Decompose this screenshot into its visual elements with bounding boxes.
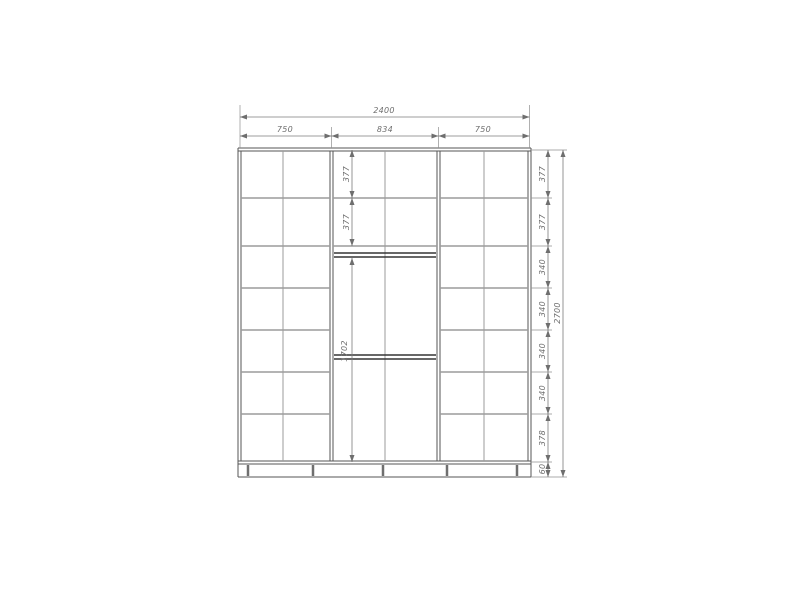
dim-section-width-right: 750 (475, 125, 491, 134)
dim-right-row-6: 340 (538, 385, 547, 401)
dim-middle-row-2: 377 (342, 213, 351, 230)
dim-overall-width: 2400 (373, 106, 395, 115)
dimensions-middle: 377 377 1702 (340, 150, 352, 462)
plinth-feet (248, 465, 517, 476)
dimensions-right: 377 377 340 340 340 340 378 60 2700 (531, 150, 567, 477)
dimensions-top: 2400 750 834 750 (240, 105, 530, 148)
middle-section (333, 151, 437, 461)
dim-right-row-plinth: 60 (538, 464, 547, 475)
right-section-grid (440, 151, 528, 461)
dim-right-row-5: 340 (538, 343, 547, 359)
wardrobe-technical-drawing: 2400 750 834 750 377 377 340 340 340 34 (0, 0, 800, 600)
dim-right-row-2: 377 (538, 213, 547, 230)
dim-right-row-4: 340 (538, 301, 547, 317)
dim-overall-height: 2700 (553, 302, 562, 324)
drawing-canvas: 2400 750 834 750 377 377 340 340 340 34 (0, 0, 800, 600)
dim-right-row-3: 340 (538, 259, 547, 275)
dim-middle-row-1: 377 (342, 165, 351, 182)
left-section-grid (241, 151, 330, 461)
dim-section-width-left: 750 (277, 125, 293, 134)
dim-section-width-middle: 834 (377, 125, 393, 134)
dim-middle-hanging-height: 1702 (340, 340, 349, 362)
dim-right-row-1: 377 (538, 165, 547, 182)
dim-right-row-7: 378 (538, 430, 547, 446)
